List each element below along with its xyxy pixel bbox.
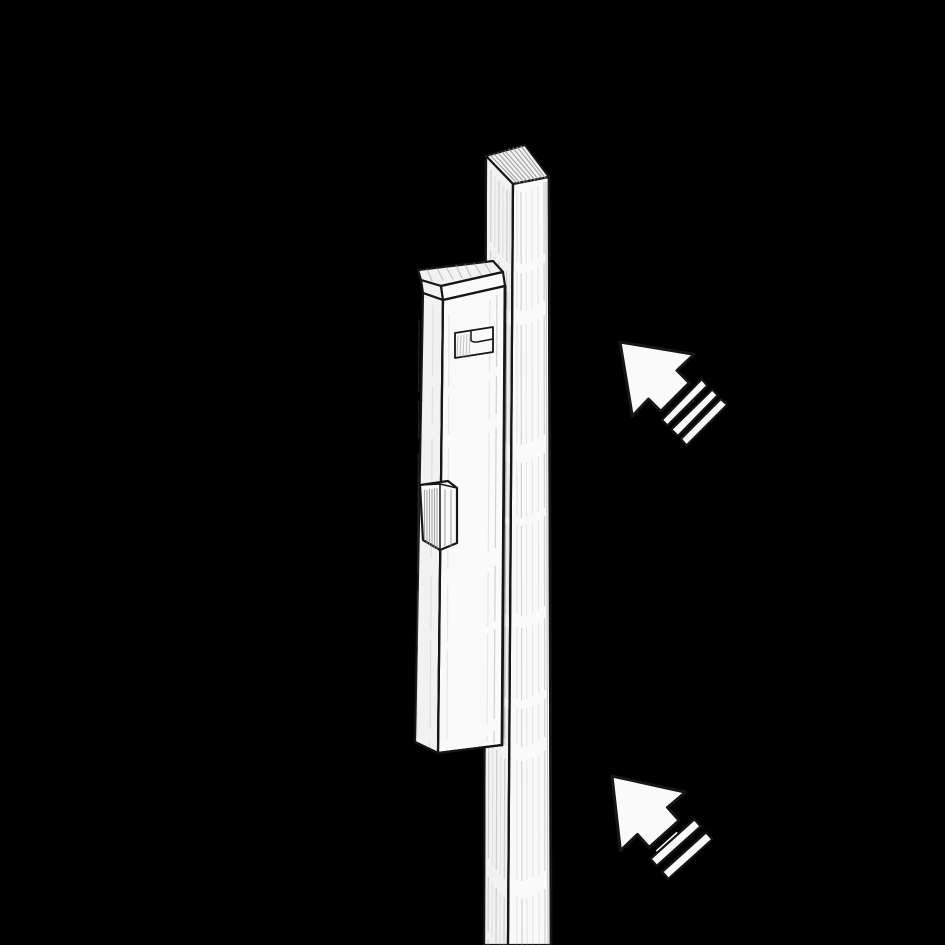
post-right-edge <box>549 177 551 945</box>
bolt-body <box>415 261 507 753</box>
slide-knob <box>420 481 457 550</box>
illustration-svg <box>0 0 945 945</box>
slot-plate <box>455 327 493 358</box>
sketch-canvas <box>0 0 945 945</box>
